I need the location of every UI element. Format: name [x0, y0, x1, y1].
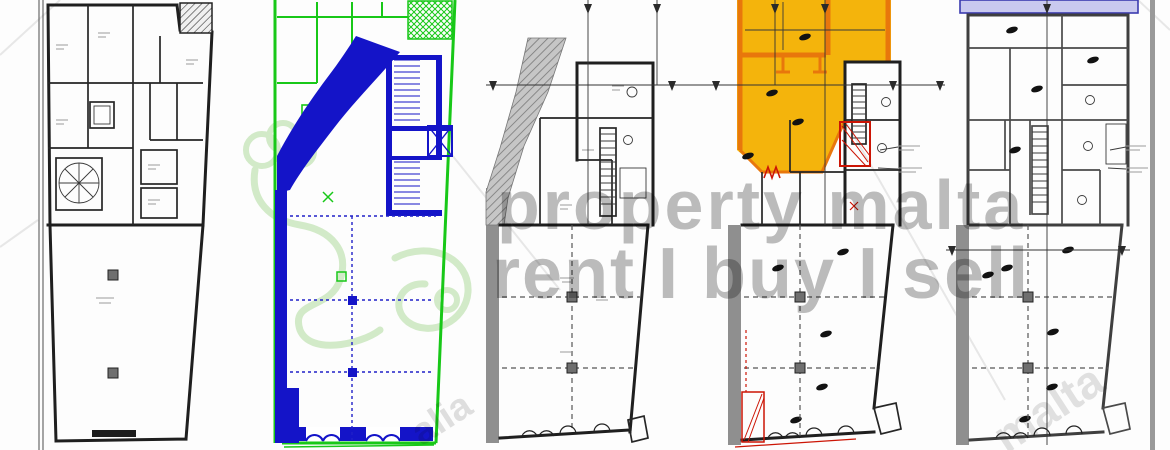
stair-flight — [1032, 126, 1048, 214]
site-boundary-right — [1150, 0, 1155, 450]
floor-plans-image: property malta rent I buy I sell alia ma… — [0, 0, 1170, 450]
watermark-rent-buy-sell: rent I buy I sell — [492, 238, 1030, 310]
demolished-wall-band — [277, 36, 400, 193]
columns — [108, 270, 118, 378]
watermark-property-malta: property malta — [497, 170, 1025, 240]
amber-area — [737, 0, 891, 172]
red-stair-annotation — [735, 330, 856, 447]
entrance-door — [92, 430, 136, 437]
blue-stair-core — [386, 55, 452, 216]
site-boundary-left — [39, 0, 43, 450]
spiral-staircase — [56, 158, 102, 210]
stairs-hatch — [180, 3, 212, 33]
plan-1-existing — [39, 0, 212, 450]
stairs-hatch-green — [408, 1, 452, 39]
